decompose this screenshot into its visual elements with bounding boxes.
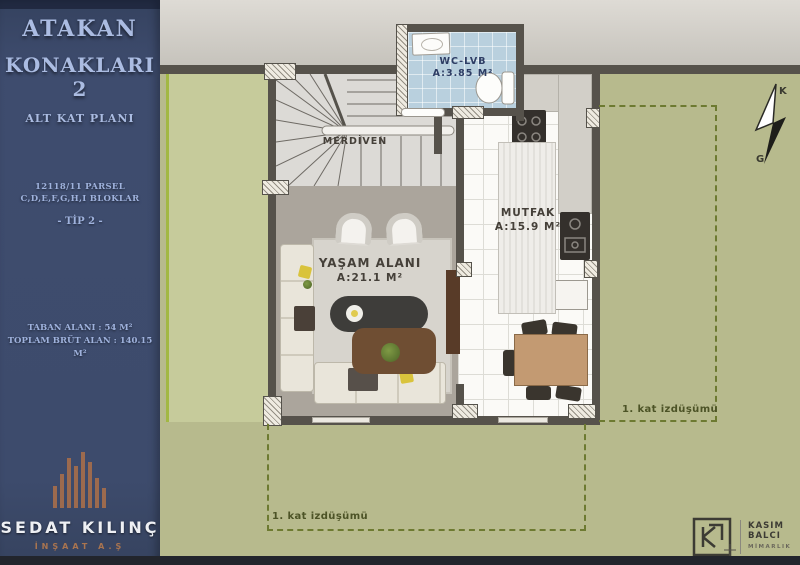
living-name: YAŞAM ALANI bbox=[306, 256, 434, 271]
kitchen-counter-right bbox=[558, 74, 592, 214]
wc-name: WC-LVB bbox=[416, 56, 510, 68]
wall bbox=[524, 66, 600, 74]
wc-room: WC-LVB A:3.85 M² bbox=[396, 24, 524, 121]
architect-logo-icon bbox=[692, 516, 738, 560]
wall bbox=[516, 24, 524, 121]
upper-floor-projection-right bbox=[599, 105, 717, 422]
wall-hatch bbox=[396, 24, 408, 116]
column-hatch bbox=[452, 404, 478, 419]
project-title-line2: KONAKLARI 2 bbox=[0, 53, 160, 101]
refrigerator-icon bbox=[552, 280, 588, 310]
type-label: - TİP 2 - bbox=[0, 216, 160, 227]
window bbox=[498, 417, 548, 423]
parcel-number: 12118/11 PARSEL bbox=[0, 181, 160, 193]
column-hatch bbox=[264, 63, 296, 80]
column-hatch bbox=[262, 180, 289, 195]
gross-area: TOPLAM BRÜT ALAN : 140.15 M² bbox=[0, 335, 160, 361]
wall bbox=[268, 66, 276, 425]
sidebar-top-band bbox=[0, 0, 160, 9]
kitchen-area: A:15.9 M² bbox=[486, 220, 570, 234]
column-hatch bbox=[263, 396, 282, 426]
garden-patch bbox=[166, 74, 271, 422]
logo-separator bbox=[740, 520, 741, 554]
living-label: YAŞAM ALANI A:21.1 M² bbox=[306, 256, 434, 286]
architect-name: KASIM BALCI MİMARLIK bbox=[748, 521, 791, 552]
compass-north: K bbox=[779, 86, 788, 97]
wc-label: WC-LVB A:3.85 M² bbox=[416, 56, 510, 80]
column-hatch bbox=[586, 108, 600, 128]
plant-icon bbox=[381, 343, 400, 362]
architect-title: MİMARLIK bbox=[748, 542, 791, 552]
builder-logo-icon bbox=[49, 452, 111, 508]
base-area: TABAN ALANI : 54 M² bbox=[0, 322, 160, 335]
builder-brand: SEDAT KILINÇ İNŞAAT A.Ş bbox=[0, 452, 160, 551]
column-hatch bbox=[456, 262, 472, 277]
side-table bbox=[294, 306, 315, 331]
column-hatch bbox=[584, 260, 598, 278]
architect-logo: KASIM BALCI MİMARLIK bbox=[692, 516, 796, 560]
compass-south: G bbox=[756, 154, 764, 165]
floor-plan-sheet: ATAKAN KONAKLARI 2 ALT KAT PLANI 12118/1… bbox=[0, 0, 800, 565]
coffee-table bbox=[330, 296, 428, 332]
project-title: ATAKAN KONAKLARI 2 ALT KAT PLANI bbox=[0, 16, 160, 125]
window bbox=[312, 417, 370, 423]
dining-chair bbox=[526, 386, 551, 400]
kitchen-name: MUTFAK bbox=[486, 206, 570, 220]
blocks-list: C,D,E,F,G,H,I BLOKLAR bbox=[0, 193, 160, 205]
door-hatch bbox=[568, 404, 596, 419]
radiator-icon bbox=[401, 108, 445, 117]
table-lamp-icon bbox=[346, 305, 363, 322]
architect-name-line2: BALCI bbox=[748, 531, 791, 541]
projection-label-bottom: 1. kat izdüşümü bbox=[272, 511, 368, 522]
living-area: A:21.1 M² bbox=[306, 271, 434, 286]
dining-table bbox=[514, 334, 588, 386]
architect-name-line1: KASIM bbox=[748, 521, 791, 531]
stairs-label: MERDİVEN bbox=[300, 136, 410, 147]
plan-subtitle: ALT KAT PLANI bbox=[0, 112, 160, 125]
builder-subname: İNŞAAT A.Ş bbox=[0, 542, 160, 551]
builder-name: SEDAT KILINÇ bbox=[0, 518, 160, 537]
parcel-info: 12118/11 PARSEL C,D,E,F,G,H,I BLOKLAR bbox=[0, 181, 160, 205]
area-info: TABAN ALANI : 54 M² TOPLAM BRÜT ALAN : 1… bbox=[0, 322, 160, 361]
tv-wall-divider bbox=[446, 270, 460, 354]
wc-area: A:3.85 M² bbox=[416, 68, 510, 80]
sink-basin bbox=[421, 38, 443, 52]
sidebar: ATAKAN KONAKLARI 2 ALT KAT PLANI 12118/1… bbox=[0, 0, 160, 565]
projection-label-right: 1. kat izdüşümü bbox=[622, 404, 718, 415]
north-arrow-icon: K G bbox=[746, 80, 794, 166]
door-hatch bbox=[452, 106, 484, 119]
lamp-dot bbox=[351, 310, 358, 317]
sink-icon bbox=[412, 32, 451, 55]
kitchen-label: MUTFAK A:15.9 M² bbox=[486, 206, 570, 234]
bottom-border-strip bbox=[0, 556, 800, 565]
wall bbox=[396, 24, 524, 32]
project-title-line1: ATAKAN bbox=[0, 16, 160, 42]
